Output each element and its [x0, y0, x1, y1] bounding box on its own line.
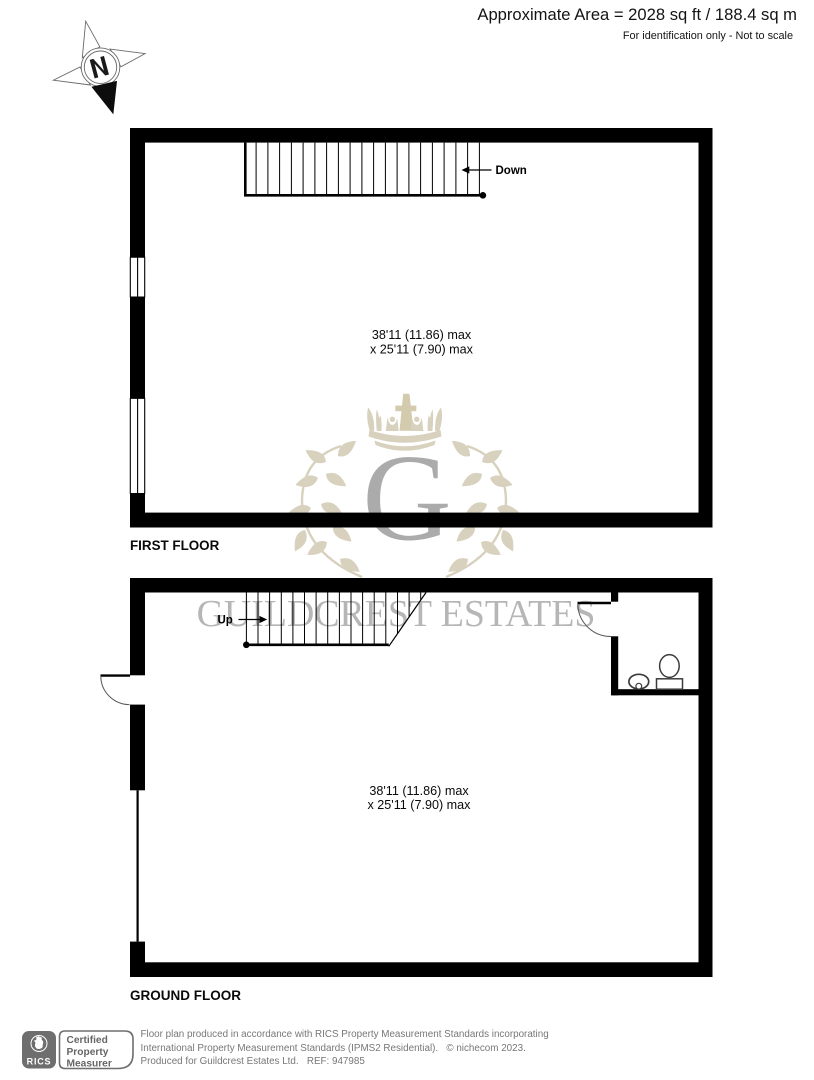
svg-text:Down: Down [496, 165, 527, 177]
svg-text:RICS: RICS [27, 1057, 52, 1067]
svg-text:Measurer: Measurer [67, 1059, 112, 1070]
svg-text:G: G [362, 430, 451, 567]
svg-text:GUILDCREST ESTATES: GUILDCREST ESTATES [197, 593, 596, 635]
svg-text:Certified: Certified [67, 1035, 108, 1046]
svg-text:Up: Up [218, 615, 233, 627]
svg-text:Property: Property [67, 1047, 109, 1058]
svg-text:x 25'11 (7.90) max: x 25'11 (7.90) max [370, 342, 474, 356]
svg-text:38'11 (11.86) max: 38'11 (11.86) max [372, 328, 472, 342]
svg-text:38'11 (11.86) max: 38'11 (11.86) max [369, 784, 469, 798]
svg-text:x 25'11 (7.90) max: x 25'11 (7.90) max [368, 798, 472, 812]
